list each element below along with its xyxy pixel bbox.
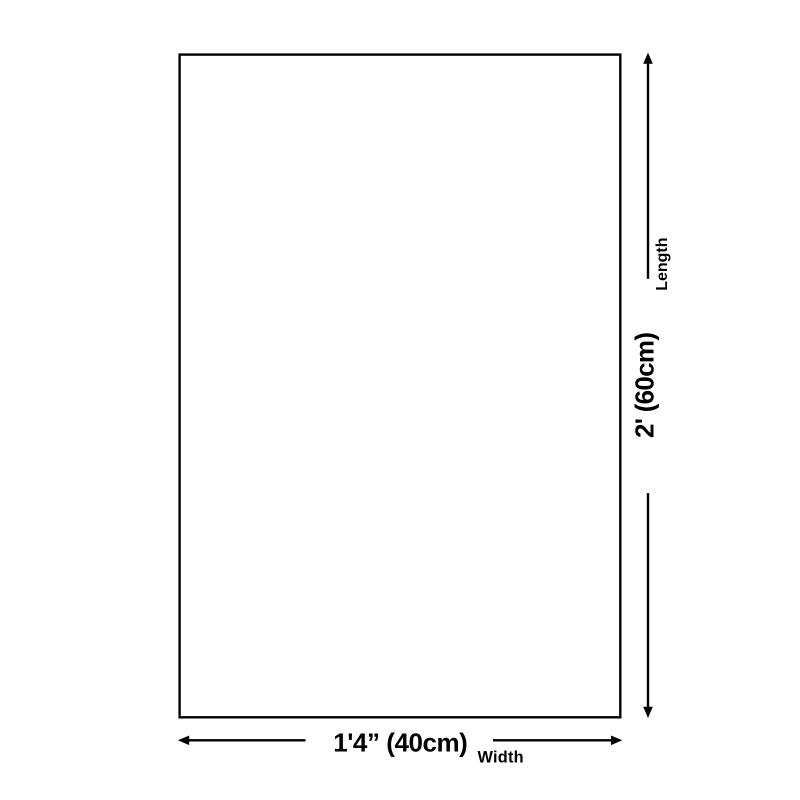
svg-text:1'4” (40cm): 1'4” (40cm) <box>333 727 467 757</box>
svg-text:Width: Width <box>478 748 524 766</box>
svg-text:Length: Length <box>654 237 671 290</box>
svg-text:2' (60cm): 2' (60cm) <box>630 333 660 438</box>
